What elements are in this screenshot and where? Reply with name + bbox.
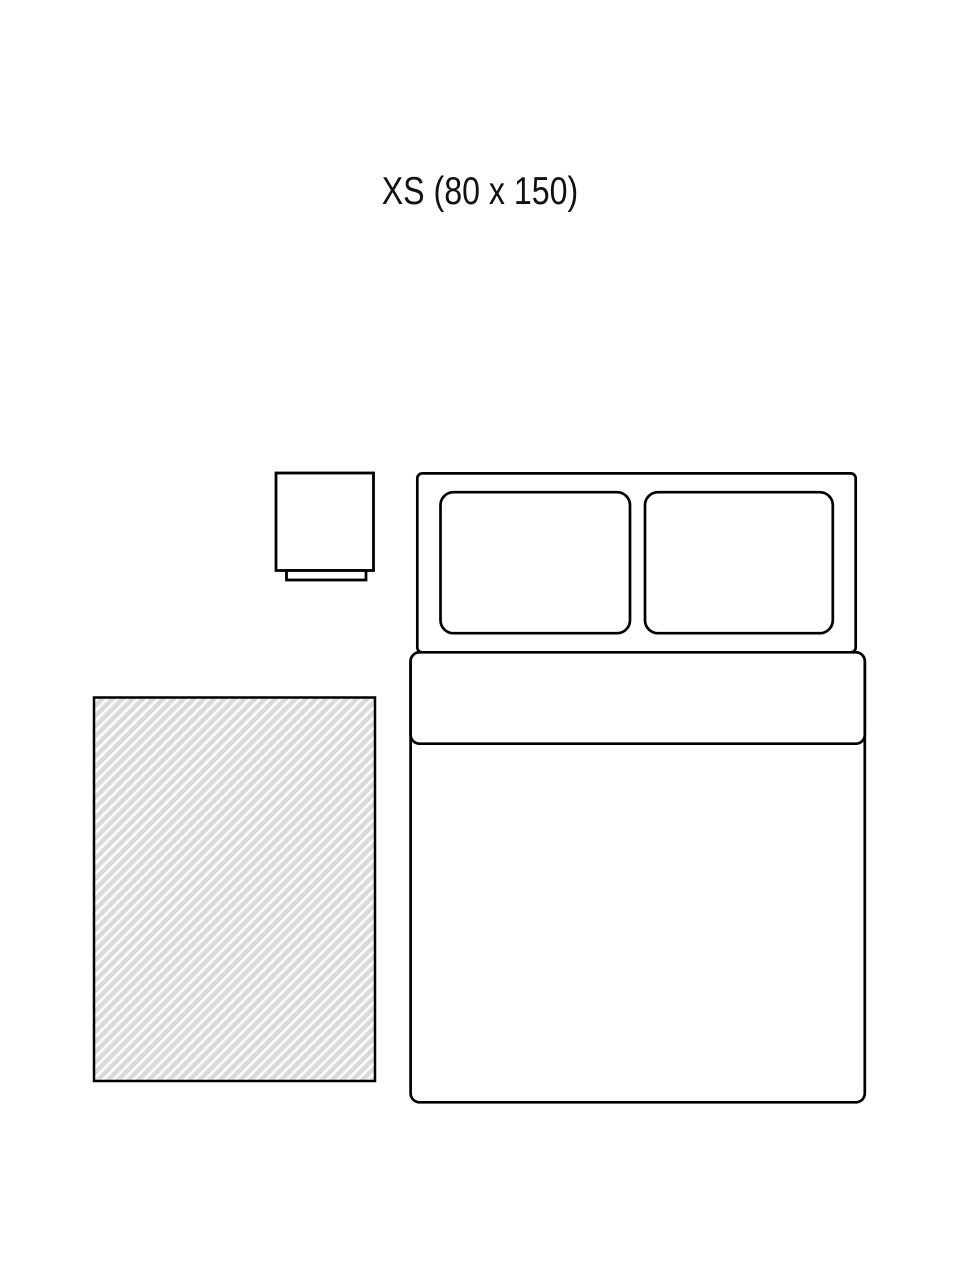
svg-text:XS (80 x 150): XS (80 x 150) <box>382 170 579 213</box>
